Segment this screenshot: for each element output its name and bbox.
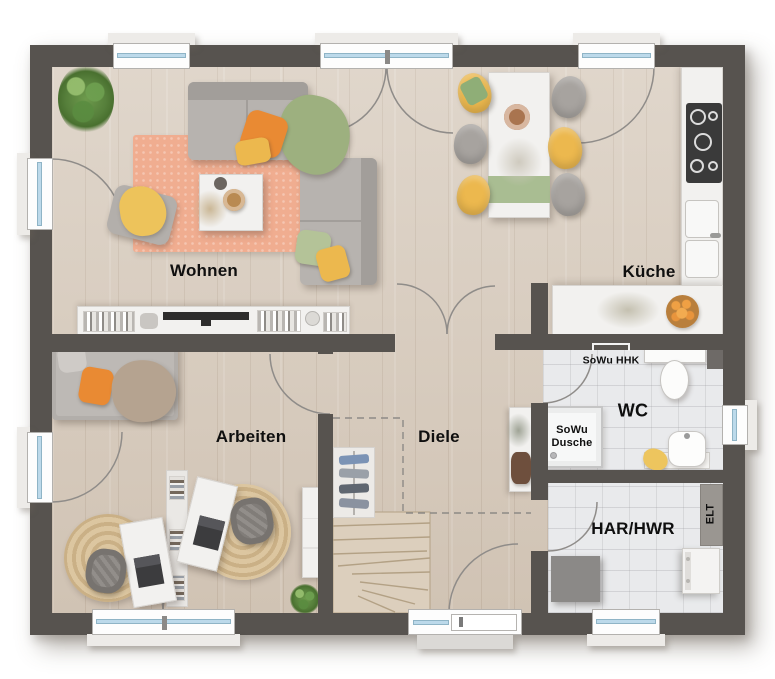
- wall-arbeiten-diele-lower: [318, 414, 333, 613]
- sofa-cushion-divider: [300, 220, 361, 222]
- window-top-wohnen-left: [113, 43, 190, 69]
- branch-decor: [596, 291, 660, 329]
- floorplan-canvas: Wohnen Küche Arbeiten Diele WC HAR/HWR S…: [0, 0, 775, 679]
- window-bottom-har: [592, 609, 660, 635]
- hanging-clothes: [339, 483, 369, 494]
- machine-knob: [686, 579, 690, 583]
- window-sill: [87, 634, 240, 646]
- dried-bouquet: [496, 138, 542, 186]
- sofa-backrest: [188, 82, 308, 100]
- room-label-wc: WC: [618, 401, 648, 422]
- burner: [708, 111, 718, 121]
- decor-object: [140, 313, 158, 329]
- wall-stub-kitchen: [531, 283, 548, 334]
- room-label-wohnen: Wohnen: [170, 261, 238, 281]
- entrance-step: [417, 635, 513, 649]
- burner: [694, 133, 712, 151]
- cushion-orange: [77, 365, 115, 406]
- wall-exterior-right: [723, 45, 745, 635]
- cooktop: [686, 103, 722, 183]
- door-handle: [459, 617, 463, 627]
- burner: [690, 109, 706, 125]
- window-mullion: [162, 616, 167, 630]
- window-top-kueche: [578, 43, 655, 69]
- decor-bowl: [223, 189, 245, 211]
- label-sowu-dusche: SoWu Dusche: [552, 424, 593, 450]
- tv-stand: [201, 320, 211, 326]
- label-sowu-dusche-line1: SoWu: [552, 424, 593, 437]
- label-sowu-hhk: SoWu HHK: [583, 355, 640, 368]
- vase-flowers: [505, 413, 532, 448]
- hanging-clothes: [339, 498, 370, 509]
- books-row: [83, 311, 135, 332]
- wall-wohnen-south: [52, 334, 395, 352]
- kitchen-sink: [685, 240, 719, 278]
- decor-sphere: [305, 311, 320, 326]
- entrance-door-frame: [408, 609, 522, 635]
- label-elt: ELT: [704, 504, 717, 525]
- room-label-har-hwr: HAR/HWR: [591, 519, 675, 539]
- window-bottom-arbeiten: [92, 609, 235, 635]
- wall-wc-har: [531, 470, 723, 483]
- room-label-diele: Diele: [418, 427, 460, 447]
- decor-cup: [214, 177, 227, 190]
- wall-exterior-left: [30, 45, 52, 635]
- window-right-wc: [722, 405, 748, 445]
- chair-cushion: [234, 502, 269, 541]
- label-sowu-dusche-line2: Dusche: [552, 437, 593, 450]
- room-label-kueche: Küche: [623, 262, 676, 282]
- potted-plant-small: [290, 584, 320, 614]
- books-row: [323, 312, 347, 332]
- wall-diele-wc: [531, 403, 548, 500]
- laptop: [134, 554, 165, 588]
- wall-arbeiten-diele-upper: [318, 334, 333, 354]
- fruit-bowl: [666, 295, 699, 328]
- faucet-icon: [710, 233, 721, 238]
- shower-drain: [550, 452, 557, 459]
- table-bowl-decor: [504, 104, 530, 130]
- room-label-arbeiten: Arbeiten: [216, 427, 287, 447]
- tv-screen: [163, 312, 249, 320]
- wardrobe: [333, 447, 375, 518]
- chair-cushion: [90, 553, 122, 589]
- window-left-arbeiten: [27, 432, 53, 503]
- hanging-clothes: [339, 468, 369, 479]
- books-stack: [169, 476, 185, 500]
- toilet-bowl: [660, 360, 689, 400]
- window-left-wohnen: [27, 158, 53, 230]
- sofa-backrest: [361, 158, 377, 285]
- hhk-niche-mark: [592, 343, 630, 351]
- wall-diele-har: [531, 551, 548, 613]
- bag-decor: [511, 452, 531, 484]
- washing-machine: [682, 548, 720, 594]
- window-top-wohnen-french: [320, 43, 453, 69]
- machine-knob: [686, 557, 690, 561]
- potted-plant: [58, 64, 114, 134]
- tv-sideboard: [77, 306, 350, 335]
- books-row: [257, 310, 301, 332]
- burner: [690, 159, 704, 173]
- door-sidelight-glass: [413, 620, 449, 625]
- hanging-clothes: [339, 454, 370, 465]
- window-mullion: [385, 50, 390, 64]
- window-sill: [587, 634, 665, 646]
- basin-tap: [684, 433, 690, 439]
- burner: [708, 161, 718, 171]
- utility-gray-box: [551, 556, 600, 602]
